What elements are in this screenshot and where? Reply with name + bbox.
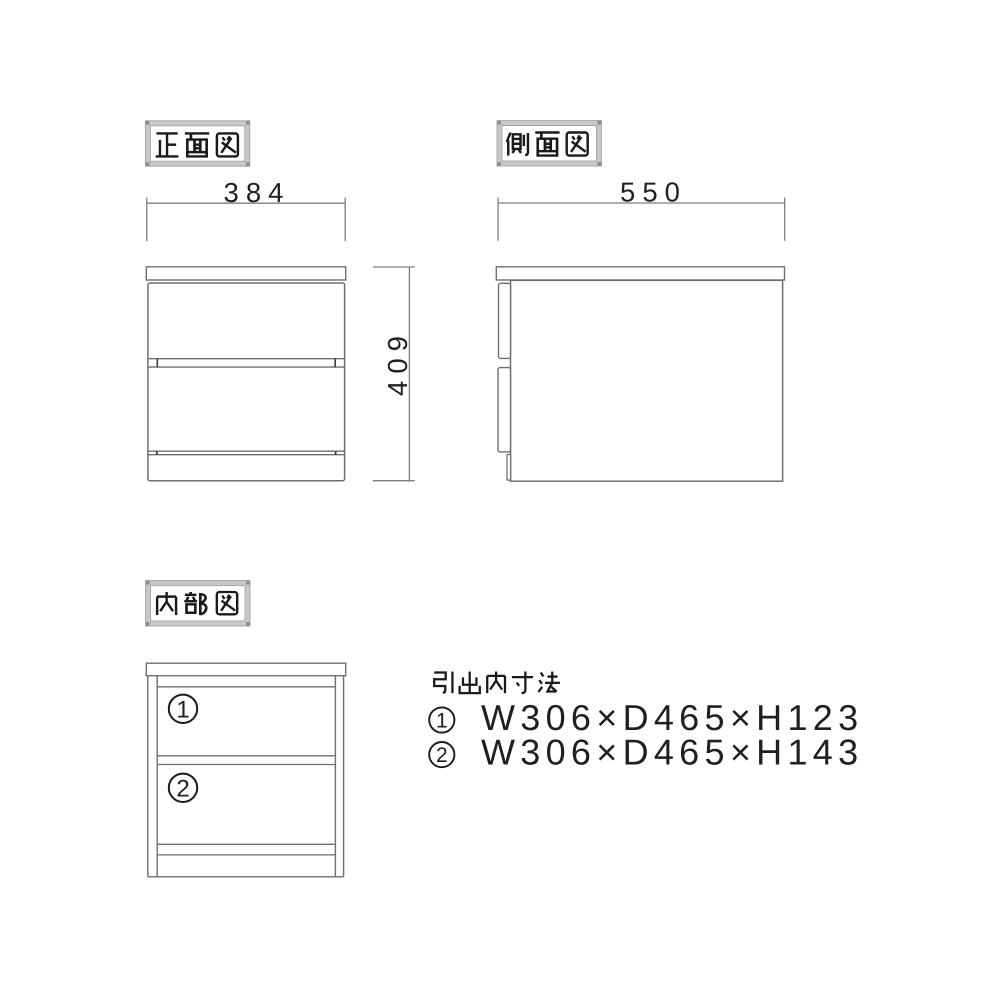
svg-text:W306×D465×H143: W306×D465×H143 bbox=[481, 732, 863, 773]
svg-text:409: 409 bbox=[382, 329, 413, 396]
svg-text:1: 1 bbox=[436, 710, 448, 733]
svg-text:1: 1 bbox=[176, 697, 189, 724]
svg-text:2: 2 bbox=[436, 744, 448, 767]
svg-text:550: 550 bbox=[620, 177, 687, 208]
svg-text:2: 2 bbox=[176, 776, 189, 803]
svg-text:384: 384 bbox=[224, 177, 291, 208]
